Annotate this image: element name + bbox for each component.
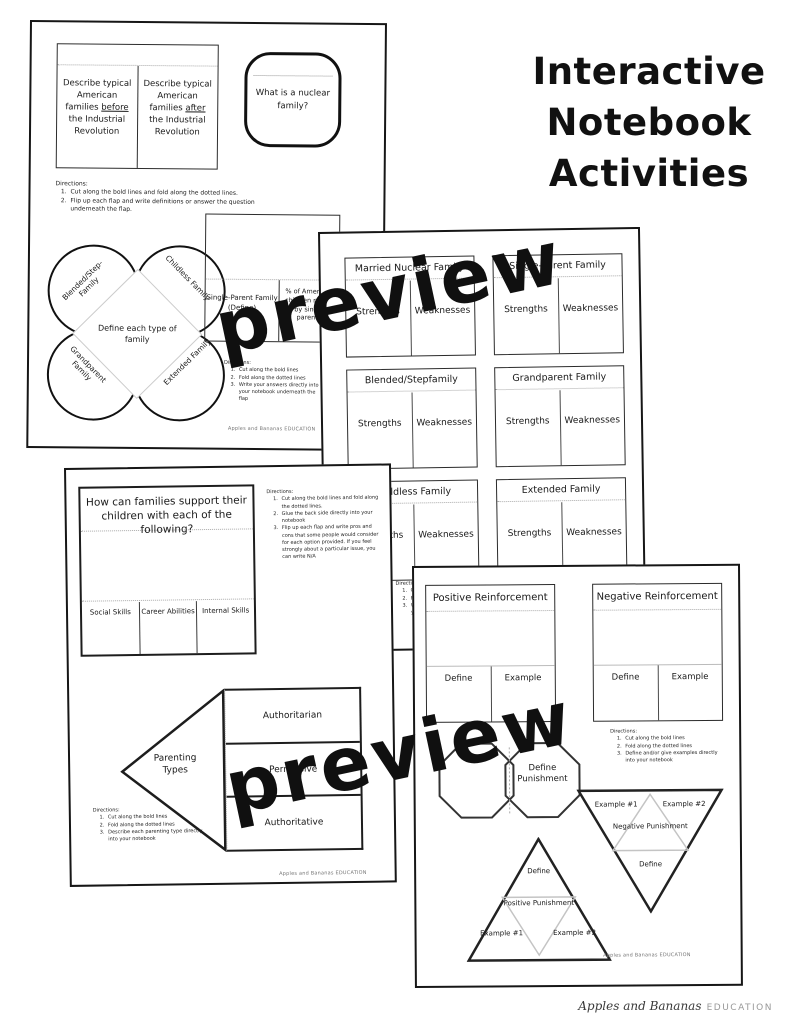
negative-reinforcement-card: Negative Reinforcement Define Example [592, 583, 723, 722]
positive-example-2-label: Example #2 [550, 929, 600, 939]
family-card-single-parent: Single-Parent Family Strengths Weaknesse… [492, 253, 624, 355]
flap-text: the Industrial Revolution [69, 114, 126, 136]
positive-punishment-label: Positive Punishment [501, 899, 576, 909]
directions-block: Directions: Cut along the bold lines and… [266, 488, 385, 562]
support-title: How can families support their children … [80, 486, 253, 531]
negative-example-1-label: Example #1 [589, 800, 644, 810]
card-title: Positive Reinforcement [426, 585, 554, 612]
single-parent-define-cell: Single-Parent Family (Define) [205, 280, 280, 342]
nuclear-family-question: What is a nuclear family? [247, 87, 338, 113]
brand-script-text: Apples and Bananas [578, 999, 701, 1013]
internal-skills-cell: Internal Skills [197, 600, 254, 653]
directions-item: Glue the back side directly into your no… [280, 509, 385, 525]
two-flap-foldable: Describe typical American families befor… [56, 43, 219, 169]
brand-logo: Apples and Bananas EDUCATION [578, 995, 773, 1014]
negative-define-label: Define [623, 860, 678, 870]
weaknesses-cell: Weaknesses [560, 389, 625, 465]
card-title: Married Nuclear Family [345, 257, 473, 281]
define-cell: Define [594, 665, 659, 720]
card-title: Grandparent Family [495, 366, 623, 390]
directions-item: Flip up each flap and write pros and con… [280, 524, 385, 562]
four-petal-foldable: Define each type of family Blended/Step-… [47, 244, 227, 422]
nuclear-family-flap: What is a nuclear family? [244, 52, 342, 148]
flap-before-revolution: Describe typical American families befor… [57, 65, 138, 168]
directions-item: Cut along the bold lines and fold along … [279, 495, 384, 511]
positive-example-1-label: Example #1 [477, 929, 527, 939]
directions-block: Directions: Cut along the bold lines Fol… [93, 806, 203, 844]
card-title: Extended Family [497, 478, 625, 502]
flap-text: the Industrial Revolution [149, 115, 206, 137]
brand-caps-text: EDUCATION [707, 1003, 773, 1013]
family-card-married-nuclear: Married Nuclear Family Strengths Weaknes… [344, 256, 476, 358]
negative-punishment-label: Negative Punishment [613, 822, 688, 832]
flap-fold-strip [81, 529, 254, 601]
worksheet-page-parenting: How can families support their children … [64, 463, 397, 887]
directions-block: Directions: Cut along the bold lines and… [55, 180, 290, 216]
weaknesses-cell: Weaknesses [558, 277, 623, 353]
positive-reinforcement-card: Positive Reinforcement Define Example [425, 584, 556, 723]
directions-block: Directions: Cut along the bold lines Fol… [224, 360, 319, 404]
family-card-grandparent: Grandparent Family Strengths Weaknesses [494, 365, 626, 467]
strengths-cell: Strengths [346, 281, 412, 357]
petal-center-label: Define each type of family [92, 289, 183, 380]
weaknesses-cell: Weaknesses [412, 392, 477, 468]
negative-example-2-label: Example #2 [657, 800, 712, 810]
flap-fold-strip [426, 611, 554, 664]
directions-item: Describe each parenting type directly in… [106, 828, 203, 844]
positive-define-label: Define [511, 867, 566, 877]
family-support-foldable: How can families support their children … [78, 484, 256, 656]
flap-text-underlined: after [185, 103, 205, 113]
strengths-cell: Strengths [496, 390, 562, 466]
page-footer-logo: Apples and Bananas EDUCATION [279, 870, 367, 877]
strengths-cell: Strengths [348, 393, 414, 469]
directions-item: Write your answers directly into your no… [237, 382, 319, 404]
career-abilities-cell: Career Abilities [139, 601, 198, 654]
card-title: Single-Parent Family [493, 254, 621, 278]
product-title: Interactive Notebook Activities [522, 46, 776, 199]
fold-line [254, 75, 333, 77]
define-punishment-label: Define Punishment [502, 763, 582, 786]
flap-fold-strip [58, 44, 218, 66]
parenting-types-label: Parenting Types [142, 752, 208, 777]
parenting-flaps: Authoritarian Permissive Authoritative [224, 687, 363, 852]
family-card-blended-step: Blended/Stepfamily Strengths Weaknesses [346, 368, 478, 470]
flap-after-revolution: Describe typical American families after… [137, 66, 217, 169]
flap-authoritarian: Authoritarian [225, 689, 360, 745]
social-skills-cell: Social Skills [82, 602, 139, 655]
card-title: Negative Reinforcement [593, 584, 721, 611]
define-cell: Define [427, 666, 492, 721]
example-cell: Example [491, 666, 555, 721]
card-title: Blended/Stepfamily [347, 369, 475, 393]
directions-item: Define and/or give examples directly int… [623, 750, 722, 765]
example-cell: Example [658, 665, 722, 720]
preview-canvas: Interactive Notebook Activities Describe… [0, 0, 791, 1024]
directions-item: Cut along the bold lines [237, 367, 319, 375]
flap-text-underlined: before [101, 102, 128, 112]
weaknesses-cell: Weaknesses [410, 280, 475, 356]
page-footer-logo: Apples and Bananas EDUCATION [228, 426, 316, 433]
directions-block: Directions: Cut along the bold lines Fol… [610, 728, 722, 765]
product-title-line: Interactive [522, 46, 776, 97]
product-title-line: Notebook [522, 97, 776, 148]
page-footer-logo: Apples and Bananas EDUCATION [603, 952, 691, 959]
flap-permissive: Permissive [226, 743, 361, 799]
strengths-cell: Strengths [494, 278, 560, 354]
flap-fold-strip [593, 610, 721, 663]
product-title-line: Activities [522, 148, 776, 199]
worksheet-page-reinforcement: Positive Reinforcement Define Example Ne… [412, 564, 743, 988]
flap-authoritative: Authoritative [227, 796, 362, 850]
